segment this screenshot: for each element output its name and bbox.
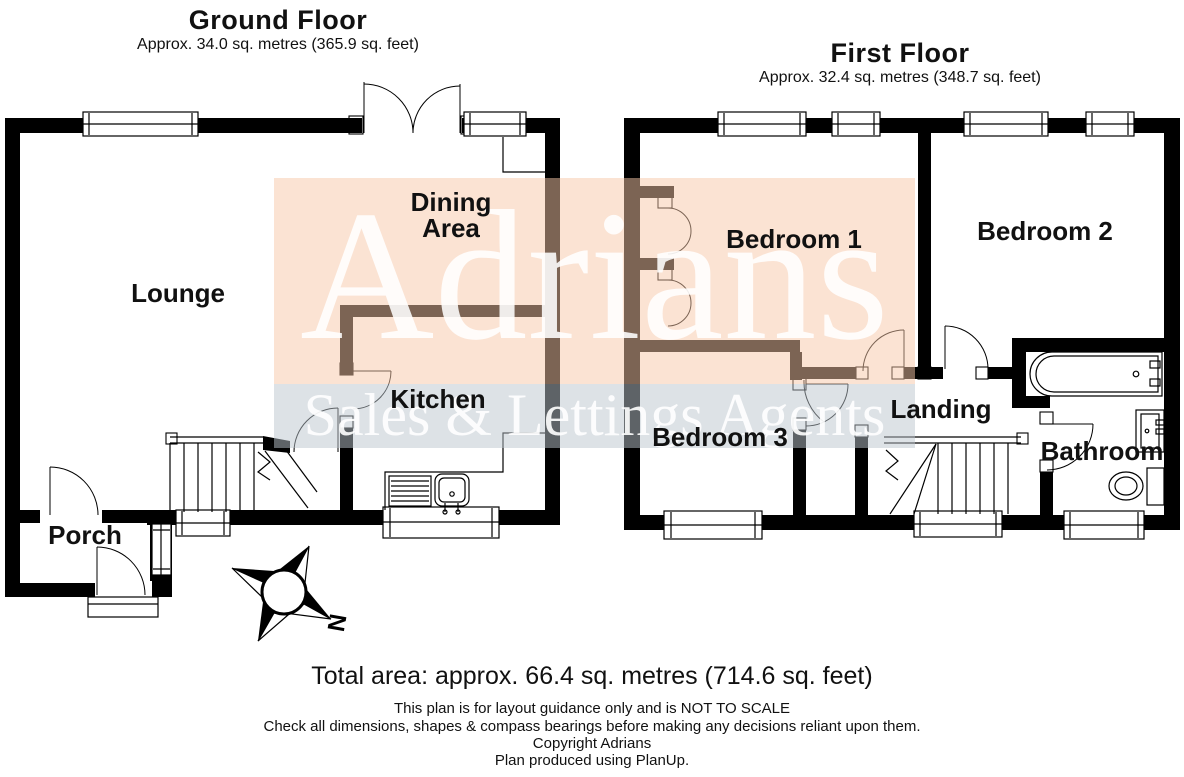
room-label-porch: Porch <box>48 520 122 550</box>
disclaimer-line-1: This plan is for layout guidance only an… <box>0 700 1184 718</box>
ground-floor-title: Ground Floor <box>78 5 478 36</box>
room-label-bedroom3: Bedroom 3 <box>652 422 788 452</box>
floorplan-page: N Adrians Sales & Lettings Agents Lounge… <box>0 0 1184 777</box>
total-area-text: Total area: approx. 66.4 sq. metres (714… <box>0 662 1184 691</box>
room-label-lounge: Lounge <box>131 278 225 308</box>
room-label-landing: Landing <box>890 394 991 424</box>
ground-floor-area: Approx. 34.0 sq. metres (365.9 sq. feet) <box>78 36 478 54</box>
first-floor-area: Approx. 32.4 sq. metres (348.7 sq. feet) <box>700 69 1100 87</box>
produced-text: Plan produced using PlanUp. <box>0 752 1184 770</box>
room-label-bedroom1: Bedroom 1 <box>726 224 862 254</box>
room-label-bedroom2: Bedroom 2 <box>977 216 1113 246</box>
room-label-dining-2: Area <box>422 213 480 243</box>
room-label-bathroom: Bathroom <box>1041 436 1164 466</box>
copyright-text: Copyright Adrians <box>0 735 1184 753</box>
disclaimer-line-2: Check all dimensions, shapes & compass b… <box>0 718 1184 736</box>
first-floor-title: First Floor <box>700 38 1100 69</box>
room-labels: Lounge Dining Area Kitchen Porch Bedroom… <box>0 0 1184 777</box>
room-label-kitchen: Kitchen <box>390 384 485 414</box>
